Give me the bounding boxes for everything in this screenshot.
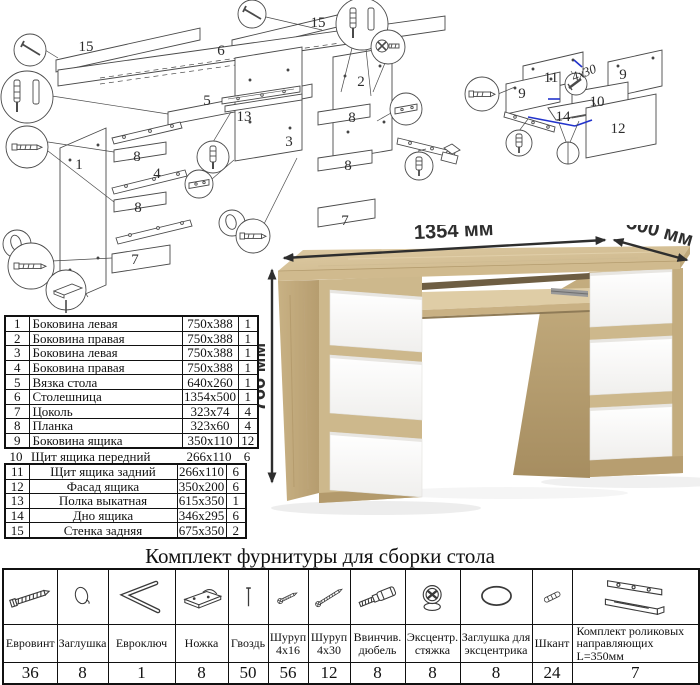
part-qty-cell: 1: [238, 316, 258, 331]
parts-table-row: 13Полка выкатная615x3501: [5, 494, 246, 509]
part-size-cell: 615x350: [177, 494, 226, 509]
part-label: 12: [611, 121, 626, 137]
part-label: 14: [556, 109, 572, 125]
callout-circle: [557, 142, 579, 164]
parts-table-row: 11Щит ящика задний266x1106: [5, 464, 246, 479]
part-num-cell: 1: [5, 316, 29, 331]
part-label: 5: [203, 93, 211, 109]
part-num-cell: 11: [5, 464, 29, 479]
part-num-cell: 4: [5, 360, 29, 375]
callout-nail-icon: [14, 34, 46, 66]
part-qty-cell: 1: [226, 494, 246, 509]
hardware-qty-cell: 24: [532, 663, 572, 685]
part-name-cell: Планка: [29, 419, 182, 434]
part-qty-cell: 1: [238, 389, 258, 404]
part-label: 8: [133, 149, 141, 165]
part-name-cell: Полка выкатная: [29, 494, 177, 509]
part-qty-cell: 1: [238, 375, 258, 390]
hardware-name-cell: Эксцентр. стяжка: [405, 625, 460, 663]
part-label: 3: [285, 134, 293, 150]
cap-icon: [57, 569, 108, 625]
hardware-qty-cell: 8: [405, 663, 460, 685]
hardware-qty-cell: 1: [108, 663, 175, 685]
hardware-name-cell: Евроключ: [108, 625, 175, 663]
dowelscrew-icon: [350, 569, 405, 625]
callout-confirmat-icon: [6, 126, 48, 168]
callout-cam-screw-icon: [371, 30, 405, 64]
hardware-name-cell: Шкант: [532, 625, 572, 663]
part-label: 1: [75, 157, 83, 173]
callout-slide-tip-icon: [185, 170, 213, 198]
parts-table-row: 2Боковина правая750x3881: [5, 331, 258, 346]
callout-dowel-icon: [197, 141, 229, 173]
part-name-cell: Боковина ящика: [29, 433, 182, 448]
hardware-name-cell: Евровинт: [3, 625, 57, 663]
hardware-qty-cell: 50: [228, 663, 268, 685]
part-name-cell: Цоколь: [29, 404, 182, 419]
part-num-cell: 5: [5, 375, 29, 390]
part-label: 7: [131, 252, 139, 268]
left-drawer-1[interactable]: [330, 290, 422, 352]
assembly-instruction-sheet: { "diagram_main": { "labels": ["15","15"…: [0, 0, 700, 677]
part-qty-cell: 1: [238, 360, 258, 375]
right-drawer-2[interactable]: [590, 336, 672, 395]
callout-foot-icon: [46, 270, 86, 313]
right-pedestal: [590, 268, 683, 477]
parts-table-row: 12Фасад ящика350x2006: [5, 479, 246, 494]
part-label: 8: [344, 158, 352, 174]
slides-icon: [572, 569, 699, 625]
part-qty-cell: 6: [237, 449, 257, 463]
parts-table-row: 8Планка323x604: [5, 419, 258, 434]
part-size-cell: 350x200: [177, 479, 226, 494]
hardware-name-cell: Заглушка: [57, 625, 108, 663]
left-side-panel: [278, 280, 319, 501]
nail-icon: [228, 569, 268, 625]
part-num-cell: 14: [5, 508, 29, 523]
hardware-icons-row: [3, 569, 699, 625]
part-num-cell: 7: [5, 404, 29, 419]
floor-shadow: [541, 476, 700, 488]
part-label: 9: [518, 86, 526, 102]
parts-table-row: 14Дно ящика346x2956: [5, 508, 246, 523]
hardware-name-cell: Ввинчив. дюбель: [350, 625, 405, 663]
parts-table-row: 7Цоколь323x744: [5, 404, 258, 419]
width-dimension-label: 1354 мм: [413, 225, 494, 244]
parts-list: 1Боковина левая750x38812Боковина правая7…: [4, 315, 259, 539]
left-pedestal: [278, 276, 422, 503]
parts-table-upper: 1Боковина левая750x38812Боковина правая7…: [4, 315, 259, 449]
right-drawer-1[interactable]: [590, 269, 672, 327]
parts-table-lower: 11Щит ящика задний266x110612Фасад ящика3…: [4, 463, 247, 539]
drawer-exploded-diagram: 11 9 9 10 14 12 4х30: [455, 35, 700, 215]
part-label: 9: [619, 67, 627, 83]
part-label: 10: [590, 94, 605, 110]
part-size-cell: 750x388: [182, 360, 238, 375]
part-num-cell: 8: [5, 419, 29, 434]
parts-table-row: 3Боковина левая750x3881: [5, 346, 258, 361]
parts-table-row: 1Боковина левая750x3881: [5, 316, 258, 331]
part-num-cell: 6: [5, 389, 29, 404]
part-size-cell: 346x295: [177, 508, 226, 523]
hardware-qty-cell: 8: [57, 663, 108, 685]
parts-table-row: 10Щит ящика передний266x1106: [4, 449, 257, 463]
part-qty-cell: 6: [226, 464, 246, 479]
hardware-name-cell: Шуруп 4x30: [308, 625, 350, 663]
hexkey-icon: [108, 569, 175, 625]
part-size-cell: 675x350: [177, 523, 226, 538]
foot-icon: [175, 569, 228, 625]
part-num-cell: 2: [5, 331, 29, 346]
hardware-qty-cell: 8: [175, 663, 228, 685]
camcap-icon: [460, 569, 532, 625]
part-qty-cell: 1: [238, 346, 258, 361]
parts-table-row: 9Боковина ящика350x11012: [5, 433, 258, 448]
part-qty-cell: 6: [226, 479, 246, 494]
screw30-icon: [308, 569, 350, 625]
parts-table-row: 15Стенка задняя675x3502: [5, 523, 246, 538]
part-label: 6: [217, 43, 225, 59]
panel-side-right: [333, 47, 392, 160]
part-qty-cell: 6: [226, 508, 246, 523]
part-name-cell: Стенка задняя: [29, 523, 177, 538]
part-size-cell: 266x110: [181, 449, 237, 463]
part-size-cell: 266x110: [177, 464, 226, 479]
part-name-cell: Боковина правая: [29, 331, 182, 346]
part-name-cell: Щит ящика передний: [28, 449, 181, 463]
part-label: 15: [79, 39, 94, 55]
hardware-quantities-row: 36818505612888247: [3, 663, 699, 685]
part-num-cell: 12: [5, 479, 29, 494]
callout-dowel-icon: [506, 130, 532, 156]
screw16-icon: [268, 569, 308, 625]
part-size-cell: 1354x500: [182, 389, 238, 404]
callout-confirmat-icon: [8, 243, 54, 289]
callout-confirmat-icon: [465, 77, 499, 111]
part-name-cell: Столешница: [29, 389, 182, 404]
hardware-names-row: ЕвровинтЗаглушкаЕвроключНожкаГвоздьШуруп…: [3, 625, 699, 663]
hardware-name-cell: Ножка: [175, 625, 228, 663]
left-pedestal-parts: [112, 122, 192, 273]
part-label: 2: [357, 74, 365, 90]
parts-table-row: 5Вязка стола640x2601: [5, 375, 258, 390]
part-qty-cell: 1: [238, 331, 258, 346]
part-label: 13: [237, 109, 252, 125]
part-num-cell: 3: [5, 346, 29, 361]
part-name-cell: Боковина правая: [29, 360, 182, 375]
shkant-icon: [532, 569, 572, 625]
callout-dowel-icon: [405, 152, 433, 180]
part-qty-cell: 12: [238, 433, 258, 448]
floor-shadow: [271, 501, 481, 515]
hardware-name-cell: Заглушка для эксцентрика: [460, 625, 532, 663]
part-name-cell: Боковина левая: [29, 316, 182, 331]
part-size-cell: 750x388: [182, 346, 238, 361]
part-name-cell: Вязка стола: [29, 375, 182, 390]
part-size-cell: 750x388: [182, 331, 238, 346]
parts-table-middle-row: 10Щит ящика передний266x1106: [4, 449, 257, 463]
part-qty-cell: 4: [238, 419, 258, 434]
part-size-cell: 323x74: [182, 404, 238, 419]
hardware-name-cell: Гвоздь: [228, 625, 268, 663]
part-name-cell: Фасад ящика: [29, 479, 177, 494]
part-label: 4: [153, 166, 161, 182]
camlock-icon: [405, 569, 460, 625]
floor-shadow: [388, 487, 628, 499]
right-drawer-3[interactable]: [590, 404, 672, 460]
callout-dowel-sleeve-icon: [1, 71, 53, 123]
hardware-name-cell: Комплект роликовых направляющих L=350мм: [572, 625, 699, 663]
part-name-cell: Дно ящика: [29, 508, 177, 523]
parts-table-row: 6Столешница1354x5001: [5, 389, 258, 404]
part-qty-cell: 2: [226, 523, 246, 538]
desk-product-render: 1354 мм 500 мм 766 мм: [258, 225, 700, 547]
part-size-cell: 350x110: [182, 433, 238, 448]
height-dimension-label: 766 мм: [258, 343, 270, 412]
parts-table-row: 4Боковина правая750x3881: [5, 360, 258, 375]
part-size-cell: 640x260: [182, 375, 238, 390]
hardware-qty-cell: 7: [572, 663, 699, 685]
part-num-cell: 9: [5, 433, 29, 448]
part-name-cell: Щит ящика задний: [29, 464, 177, 479]
part-label: 8: [134, 200, 142, 216]
hardware-qty-cell: 8: [350, 663, 405, 685]
part-label: 15: [311, 15, 326, 31]
part-size-cell: 750x388: [182, 316, 238, 331]
part-label: 8: [348, 110, 356, 126]
part-name-cell: Боковина левая: [29, 346, 182, 361]
part-num-cell: 13: [5, 494, 29, 509]
part-num-cell: 15: [5, 523, 29, 538]
hardware-kit-table: ЕвровинтЗаглушкаЕвроключНожкаГвоздьШуруп…: [2, 568, 700, 685]
part-size-cell: 323x60: [182, 419, 238, 434]
hardware-qty-cell: 12: [308, 663, 350, 685]
callout-slide-tip-icon: [390, 93, 422, 125]
hardware-qty-cell: 36: [3, 663, 57, 685]
drawer-rail: [504, 112, 555, 132]
callout-nail-icon: [238, 0, 266, 28]
hardware-qty-cell: 8: [460, 663, 532, 685]
desk-body: [278, 246, 690, 503]
left-drawer-3[interactable]: [330, 432, 422, 497]
left-drawer-2[interactable]: [330, 355, 422, 420]
part-num-cell: 10: [4, 449, 28, 463]
part-label: 11: [544, 70, 558, 86]
hardware-kit-title: Комплект фурнитуры для сборки стола: [0, 544, 640, 569]
euroscrew-icon: [3, 569, 57, 625]
part-qty-cell: 4: [238, 404, 258, 419]
hardware-qty-cell: 56: [268, 663, 308, 685]
hardware-name-cell: Шуруп 4x16: [268, 625, 308, 663]
